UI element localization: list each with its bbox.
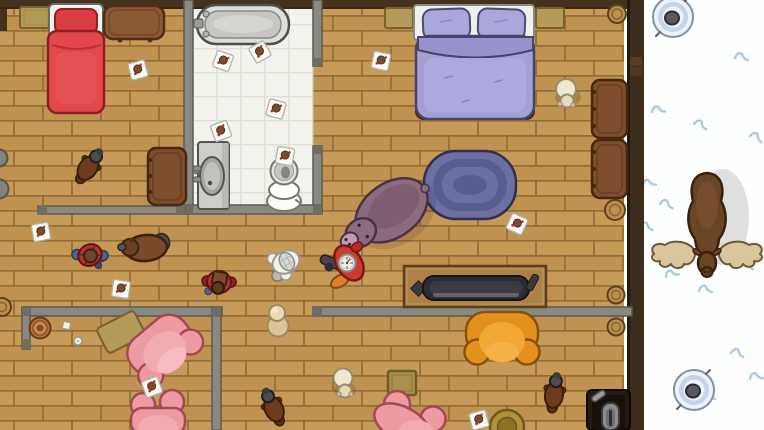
paper-scrap[interactable] <box>469 410 490 430</box>
oval-rug-shape <box>453 175 487 195</box>
wall-posts-shape <box>608 5 626 23</box>
bathroom-walls-shape <box>313 0 322 66</box>
desk[interactable] <box>404 266 546 307</box>
bathroom-walls-shape <box>313 205 322 214</box>
round-object-shape <box>498 418 517 430</box>
wall-cushion-right-1-shape <box>592 90 596 94</box>
outer-wall-right-shape <box>630 57 642 66</box>
sheep-shape <box>337 392 341 396</box>
outer-wall-right <box>627 0 644 430</box>
interior-wall-upper-left <box>38 205 185 215</box>
interior-walls-lower-shape <box>22 339 30 349</box>
sheep-shape <box>349 392 353 396</box>
interior-walls-lower-shape <box>22 307 222 316</box>
wall-cushion-right-1[interactable] <box>592 80 627 138</box>
oval-rug <box>424 151 516 219</box>
white-debris-shape <box>77 340 80 343</box>
snow-well-shape <box>686 385 700 398</box>
toilet-shape <box>281 167 290 179</box>
snow-well-shape <box>665 12 679 25</box>
moose-shape <box>708 271 710 273</box>
floor-mat-top-left <box>20 7 52 28</box>
bathtub-shape <box>213 15 273 33</box>
red-bed-shape <box>56 52 96 104</box>
interior-walls-lower-shape <box>313 307 632 316</box>
bathtub-shape <box>203 11 209 17</box>
white-debris-shape <box>62 321 70 329</box>
cabinet-bottom-right-shape <box>609 410 612 426</box>
interior-wall-upper-left-shape <box>176 205 185 215</box>
interior-walls-lower-shape <box>212 307 221 317</box>
wool-pile[interactable] <box>268 305 289 337</box>
wall-cushion-left-shape <box>148 158 152 162</box>
desk-shape <box>429 281 523 295</box>
fire-extinguisher-character-shape <box>325 263 334 272</box>
orange-armchair[interactable] <box>465 312 540 365</box>
wall-cushion-left[interactable] <box>148 148 186 205</box>
double-bed-shape <box>424 58 526 112</box>
bathroom-walls-shape <box>313 146 322 213</box>
sink-shape <box>204 162 220 190</box>
sink-shape <box>208 181 212 185</box>
snow-well[interactable] <box>653 0 693 37</box>
scene-root <box>0 0 764 430</box>
wool-pile-shape <box>272 307 278 313</box>
wall-posts-shape <box>608 319 625 336</box>
bathroom-walls-shape <box>313 146 322 154</box>
bathroom-walls-shape <box>313 58 322 66</box>
paper-scrap[interactable] <box>371 51 391 71</box>
snow-well[interactable] <box>674 370 714 410</box>
outer-wall-right-shape <box>627 0 630 430</box>
desk-shape <box>433 293 519 297</box>
interior-walls-lower-shape <box>212 307 221 430</box>
moose-shape <box>696 181 718 229</box>
sheep-shape <box>558 102 562 106</box>
left-edge-object-shape <box>0 150 8 167</box>
wall-cushion-right-1-shape <box>592 124 596 128</box>
outer-wall-top-shape <box>0 9 7 31</box>
wall-cushion-right-2-shape <box>592 150 596 154</box>
red-bed[interactable] <box>48 4 104 113</box>
bench-cushion-top[interactable] <box>104 6 164 43</box>
door-mat-bed-left <box>385 8 413 28</box>
wall-cushion-right-2[interactable] <box>592 140 627 198</box>
wall-posts-shape <box>605 200 625 220</box>
wall-cushion-left-shape <box>148 190 152 194</box>
wall-posts-shape <box>0 298 11 316</box>
beaver-shape <box>118 243 127 251</box>
moose-shape <box>704 271 706 273</box>
wall-posts-shape <box>608 287 625 304</box>
door-mat-bed-left-shape <box>385 8 413 28</box>
orange-armchair-shape <box>485 342 519 362</box>
paper-scrap[interactable] <box>111 279 130 298</box>
interior-wall-upper-left-shape <box>38 206 185 214</box>
double-bed[interactable] <box>414 4 534 119</box>
fire-extinguisher-character-shape <box>346 262 348 264</box>
red-bed-shape <box>55 9 97 33</box>
sheep-shape <box>571 103 575 107</box>
sink[interactable] <box>193 142 229 209</box>
wall-cushion-right-1-shape <box>592 107 596 111</box>
door-mat-bed-right <box>536 8 564 28</box>
wall-cushion-left-shape <box>148 174 152 178</box>
wall-cushion-right-2-shape <box>592 167 596 171</box>
double-bed-shape <box>418 37 533 58</box>
target-rug <box>30 318 51 339</box>
toilet[interactable] <box>267 158 301 212</box>
game-scene[interactable] <box>0 0 764 430</box>
cabinet-bottom-right[interactable] <box>587 389 630 430</box>
wall-cushion-right-2-shape <box>592 184 596 188</box>
bathtub[interactable] <box>194 5 289 44</box>
moose-shape <box>702 267 713 277</box>
sink-shape <box>194 170 199 175</box>
paper-scrap[interactable] <box>128 60 149 81</box>
interior-walls-lower-shape <box>22 307 30 316</box>
paper-scrap[interactable] <box>31 222 51 242</box>
interior-wall-upper-left-shape <box>38 205 47 215</box>
bathtub-shape <box>203 31 209 37</box>
interior-walls-lower-shape <box>313 307 322 317</box>
game-viewport[interactable] <box>0 0 764 430</box>
target-rug-shape <box>37 325 44 332</box>
wool-pile-shape <box>269 305 285 321</box>
door-mat-bed-right-shape <box>536 8 564 28</box>
bathtub-shape <box>194 19 203 28</box>
paper-scrap[interactable] <box>275 146 295 166</box>
outer-wall-right-shape <box>630 67 642 76</box>
bench-cushion-top-shape <box>148 38 153 43</box>
bench-cushion-top-shape <box>118 38 123 43</box>
lumberjack-character-shape <box>211 281 225 295</box>
sink-shape <box>193 177 201 182</box>
paper-scrap[interactable] <box>266 99 287 120</box>
